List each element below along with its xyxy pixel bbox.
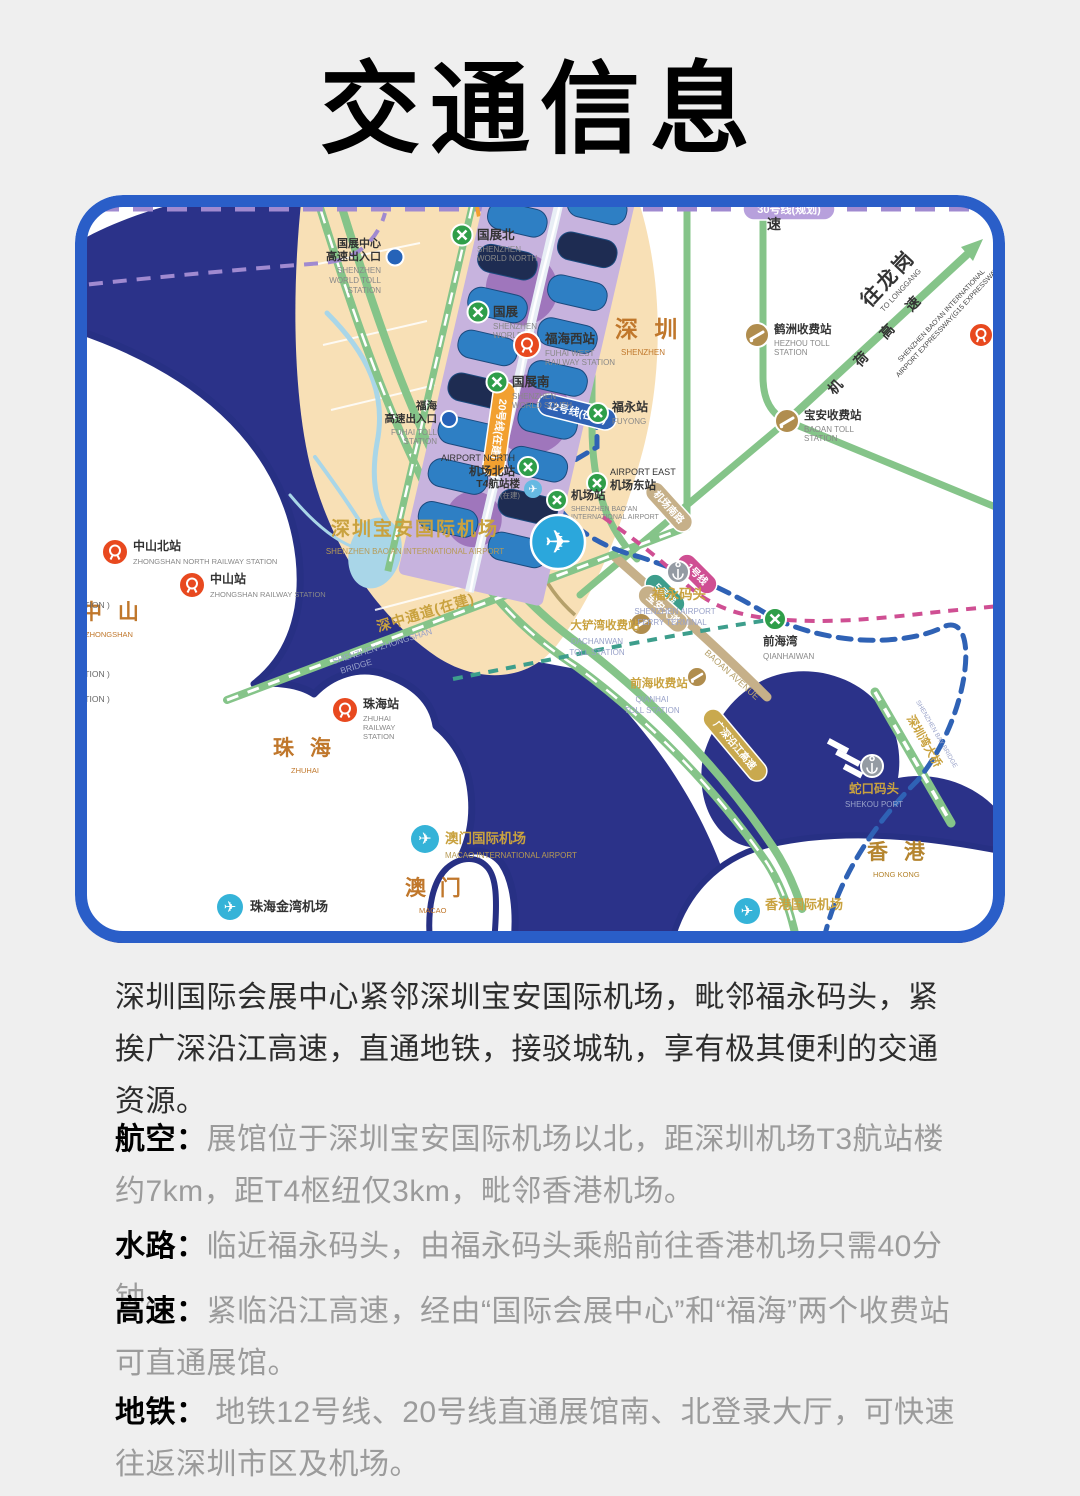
svg-text:ZHONGSHAN RAILWAY STATION: ZHONGSHAN RAILWAY STATION: [210, 590, 326, 599]
map-canvas: 30号线(规划) 12号线(在建) 20号线(在建) 1号线 5号线 宝安大道 …: [75, 195, 1005, 943]
metro-icon: [452, 225, 473, 246]
svg-text:ZHUHAI: ZHUHAI: [291, 766, 319, 775]
svg-text:鹤洲收费站: 鹤洲收费站: [774, 322, 832, 336]
baoan-avenue-label: BAOAN AVENUE: [703, 648, 762, 702]
section-air-text: 展馆位于深圳宝安国际机场以北，距深圳机场T3航站楼约7km，距T4枢纽仅3km，…: [115, 1123, 944, 1208]
svg-text:✈: ✈: [528, 484, 537, 496]
anchor-icon: [667, 561, 689, 583]
svg-text:STATION: STATION: [774, 348, 808, 357]
svg-text:TOLL STATION: TOLL STATION: [624, 706, 679, 715]
railway-icon: [332, 697, 358, 723]
svg-text:SHEKOU PORT: SHEKOU PORT: [845, 800, 903, 809]
svg-text:MACAO: MACAO: [419, 906, 447, 915]
svg-text:前海收费站: 前海收费站: [630, 676, 688, 690]
svg-text:SHENZHEN: SHENZHEN: [621, 348, 665, 357]
baoan-airport-icon: ✈: [531, 515, 585, 569]
baoan-airport-label: 深圳宝安国际机场 SHENZHEN BAO'AN INTERNATIONAL A…: [326, 517, 504, 556]
toll-dot-icon: [441, 411, 457, 427]
svg-text:宝安收费站: 宝安收费站: [804, 408, 862, 422]
svg-text:机场站: 机场站: [571, 488, 606, 502]
svg-text:✈: ✈: [224, 899, 237, 916]
svg-text:AIRPORT EAST: AIRPORT EAST: [610, 467, 676, 477]
svg-text:STATION: STATION: [404, 437, 438, 446]
railway-icon: [969, 323, 993, 347]
metro-icon: [547, 490, 567, 510]
svg-text:大铲湾收费站: 大铲湾收费站: [571, 618, 640, 632]
section-metro: 地铁： 地铁12号线、20号线直通展馆南、北登录大厅，可快速往返深圳市区及机场。: [115, 1387, 967, 1491]
svg-text:SHENZHEN: SHENZHEN: [493, 322, 537, 331]
svg-text:福海西站: 福海西站: [544, 331, 596, 346]
svg-text:FUYONG: FUYONG: [612, 417, 646, 426]
svg-text:SHENZHEN: SHENZHEN: [337, 266, 381, 275]
toll-gate-icon: [687, 667, 707, 687]
svg-text:国展北: 国展北: [477, 227, 515, 242]
metro-icon: [588, 403, 608, 423]
svg-text:机场北站: 机场北站: [469, 464, 515, 478]
section-water-label: 水路：: [115, 1230, 207, 1263]
plane-icon: ✈: [411, 825, 439, 853]
svg-text:DACHANWAN: DACHANWAN: [571, 637, 623, 646]
svg-text:UCTION ): UCTION ): [75, 600, 110, 610]
svg-text:MACAO INTERNATIONAL AIRPORT: MACAO INTERNATIONAL AIRPORT: [445, 851, 577, 860]
toll-dot-icon: [387, 249, 404, 266]
section-metro-label: 地铁：: [115, 1396, 207, 1429]
section-expressway: 高速：紧临沿江高速，经由“国际会展中心”和“福海”两个收费站可直通展馆。: [115, 1286, 967, 1390]
svg-text:FUHAI TOLL: FUHAI TOLL: [391, 428, 437, 437]
plane-small-icon: ✈: [524, 480, 542, 498]
svg-text:国展南: 国展南: [512, 374, 550, 389]
svg-text:WORLD TOLL: WORLD TOLL: [329, 276, 381, 285]
railway-icon: [514, 332, 540, 358]
svg-text:✈: ✈: [545, 524, 572, 560]
svg-text:UCTION ): UCTION ): [75, 694, 110, 704]
svg-text:香港国际机场: 香港国际机场: [764, 897, 843, 912]
svg-text:INTERNATIONAL AIRPORT: INTERNATIONAL AIRPORT: [571, 514, 659, 521]
svg-text:福永码头: 福永码头: [651, 586, 706, 602]
section-air: 航空：展馆位于深圳宝安国际机场以北，距深圳机场T3航站楼约7km，距T4枢纽仅3…: [115, 1114, 967, 1218]
svg-text:珠 海: 珠 海: [273, 736, 336, 760]
metro-icon: [468, 302, 489, 323]
metro-icon: [518, 457, 538, 477]
svg-text:✈: ✈: [418, 831, 431, 848]
station-fuyong: 福永站 FUYONG: [588, 399, 648, 426]
svg-text:HONG KONG: HONG KONG: [873, 870, 920, 879]
line30-pill: 30号线(规划): [743, 198, 835, 220]
svg-text:(在建): (在建): [500, 490, 520, 500]
station-shenzhen-north: 深圳北站 SHENZHEN NORTH: [969, 322, 1005, 348]
svg-text:QIANHAI: QIANHAI: [636, 695, 669, 704]
hezhou-toll: 鹤洲收费站 HEZHOU TOLL STATION: [745, 322, 832, 357]
station-qianhaiwan: 前海湾 QIANHAIWAN: [763, 608, 814, 661]
svg-text:SHENZHEN NORTH: SHENZHEN NORTH: [997, 341, 1005, 348]
railway-icon: [179, 572, 205, 598]
svg-text:✈: ✈: [741, 903, 754, 920]
svg-text:中山站: 中山站: [210, 571, 246, 586]
plane-icon: ✈: [217, 894, 243, 920]
traffic-map: 30号线(规划) 12号线(在建) 20号线(在建) 1号线 5号线 宝安大道 …: [75, 195, 1005, 943]
section-expressway-text: 紧临沿江高速，经由“国际会展中心”和“福海”两个收费站可直通展馆。: [115, 1295, 950, 1380]
svg-text:深 圳: 深 圳: [615, 316, 682, 342]
svg-text:HEZHOU TOLL: HEZHOU TOLL: [774, 339, 830, 348]
section-expressway-label: 高速：: [115, 1295, 207, 1328]
svg-text:SHENZHEN: SHENZHEN: [477, 245, 521, 254]
section-air-label: 航空：: [115, 1123, 207, 1156]
svg-text:珠海站: 珠海站: [363, 696, 399, 711]
svg-text:AIRPORT NORTH: AIRPORT NORTH: [441, 453, 515, 463]
svg-text:FUHAI WEST: FUHAI WEST: [545, 349, 594, 358]
svg-text:WORLD NORTH: WORLD NORTH: [477, 254, 538, 263]
svg-text:澳门国际机场: 澳门国际机场: [445, 830, 526, 846]
svg-text:RAILWAY STATION: RAILWAY STATION: [545, 358, 615, 367]
svg-text:SHENZHEN BAO'AN: SHENZHEN BAO'AN: [571, 506, 637, 513]
svg-text:澳 门: 澳 门: [405, 876, 465, 900]
svg-text:SHENZHEN: SHENZHEN: [512, 392, 556, 401]
svg-text:STATION: STATION: [363, 732, 394, 741]
svg-text:福海: 福海: [415, 399, 437, 412]
svg-text:国展: 国展: [493, 305, 519, 319]
toll-gate-icon: [775, 409, 799, 433]
svg-text:T4航站楼: T4航站楼: [476, 477, 520, 490]
svg-text:国展中心: 国展中心: [337, 236, 381, 250]
anchor-icon: [861, 755, 883, 777]
svg-text:机场东站: 机场东站: [610, 478, 656, 492]
svg-text:珠海金湾机场: 珠海金湾机场: [250, 899, 328, 914]
svg-text:QIANHAIWAN: QIANHAIWAN: [763, 652, 814, 661]
svg-text:ZHUHAI: ZHUHAI: [363, 714, 391, 723]
svg-text:WORLD SOUTH: WORLD SOUTH: [512, 401, 572, 410]
svg-text:FERRY TERMINAL: FERRY TERMINAL: [637, 618, 707, 627]
svg-text:前海湾: 前海湾: [763, 634, 798, 648]
railway-icon: [102, 539, 128, 565]
baoan-toll: 宝安收费站 BAOAN TOLL STATION: [775, 408, 862, 443]
svg-text:高速出入口: 高速出入口: [326, 249, 381, 263]
intro-paragraph: 深圳国际会展中心紧邻深圳宝安国际机场，毗邻福永码头，紧挨广深沿江高速，直通地铁，…: [115, 972, 967, 1128]
svg-text:深圳北站: 深圳北站: [997, 322, 1005, 336]
metro-icon: [487, 372, 508, 393]
section-metro-text: 地铁12号线、20号线直通展馆南、北登录大厅，可快速往返深圳市区及机场。: [115, 1396, 955, 1481]
svg-text:深圳宝安国际机场: 深圳宝安国际机场: [331, 517, 499, 540]
metro-icon: [764, 608, 786, 630]
cutoff-road-char: 速: [767, 216, 781, 232]
svg-text:蛇口码头: 蛇口码头: [849, 781, 900, 796]
svg-text:STATION: STATION: [348, 286, 382, 295]
svg-text:ZHONGSHAN NORTH RAILWAY STATIO: ZHONGSHAN NORTH RAILWAY STATION: [133, 557, 277, 566]
svg-text:BAOAN AVENUE: BAOAN AVENUE: [703, 648, 762, 702]
svg-text:福永站: 福永站: [611, 399, 648, 414]
region-shenzhen: 深 圳 SHENZHEN: [615, 316, 682, 357]
svg-text:STATION: STATION: [804, 434, 838, 443]
svg-text:ZHONGSHAN: ZHONGSHAN: [85, 630, 133, 639]
svg-text:高速出入口: 高速出入口: [385, 412, 438, 425]
svg-text:UCTION ): UCTION ): [75, 669, 110, 679]
svg-text:中山北站: 中山北站: [133, 538, 181, 553]
toll-gate-icon: [745, 323, 769, 347]
page-title: 交通信息: [0, 28, 1080, 173]
svg-text:TOLL STATION: TOLL STATION: [569, 648, 624, 657]
plane-icon: ✈: [734, 898, 760, 924]
svg-text:香 港: 香 港: [867, 840, 930, 864]
svg-text:30号线(规划): 30号线(规划): [757, 202, 821, 216]
svg-text:BAOAN TOLL: BAOAN TOLL: [804, 425, 855, 434]
svg-text:SHENZHEN BAO'AN INTERNATIONAL: SHENZHEN BAO'AN INTERNATIONAL AIRPORT: [326, 547, 504, 556]
svg-text:SHENZHEN AIRPORT: SHENZHEN AIRPORT: [634, 607, 715, 616]
svg-text:RAILWAY: RAILWAY: [363, 723, 395, 732]
